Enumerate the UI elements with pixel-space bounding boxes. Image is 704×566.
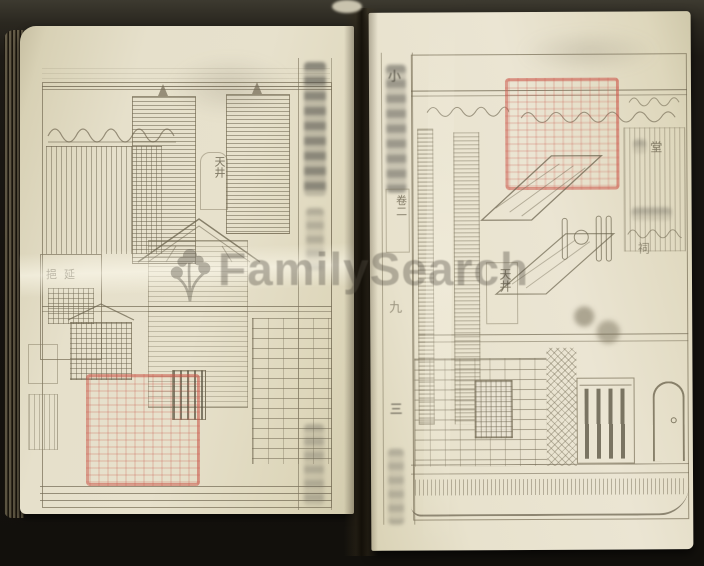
photo-of-open-genealogy-book: 天井 挹延 (0, 0, 704, 566)
roof-finial-left (158, 84, 168, 96)
left-page: 天井 挹延 (20, 26, 354, 514)
platform-hatch-band (415, 478, 685, 495)
illegible-margin-characters (304, 424, 324, 506)
base-platform-right (411, 463, 689, 516)
right-page: 小 卷二 九 三 天井 (369, 11, 694, 551)
gate-lintel (580, 384, 632, 385)
mid-wall-rule-right (418, 333, 688, 342)
small-house (70, 322, 132, 380)
ritual-vessels-group (562, 210, 614, 268)
gutter-title-first-character: 小 (388, 66, 401, 85)
hall-label: 堂 (650, 138, 662, 155)
platform-rule (411, 472, 689, 474)
scroll-ornament-upper-right (627, 93, 681, 107)
paper-stain (170, 56, 290, 116)
book-gutter-shadow (344, 8, 378, 556)
red-square-collection-seal-left (86, 374, 200, 486)
illegible-annex-label (632, 207, 672, 220)
illegible-title-characters (304, 62, 326, 196)
margin-structure-upper (28, 344, 58, 384)
volume-label: 卷二 (391, 195, 407, 249)
vessel-stand (562, 218, 568, 260)
arched-doorway (653, 381, 685, 461)
door-handle-ring (671, 417, 677, 423)
lattice-window-right-page (475, 380, 513, 438)
illegible-gutter-lower-text (388, 449, 404, 525)
round-vessel (574, 230, 589, 245)
courtyard-label-right-page: 天井 (493, 268, 511, 322)
cobblestone-path (546, 348, 577, 466)
scroll-ornament-mid-right (626, 225, 682, 239)
courtyard-label-left-page: 天井 (205, 156, 225, 208)
shrine-label: 祠 (638, 239, 650, 256)
cloud-scroll-ridge (46, 120, 178, 146)
vessel-stand (606, 216, 612, 262)
protruding-page-edge (332, 0, 362, 13)
gutter-section-number: 三 (390, 399, 403, 418)
base-platform-lines-left (40, 486, 332, 504)
gutter-page-number: 九 (389, 297, 402, 316)
illegible-hall-label-companion (633, 139, 646, 153)
margin-structure-lower (28, 394, 58, 450)
vessel-stand (596, 216, 602, 262)
barred-gate (577, 377, 635, 463)
gate-bars (585, 388, 629, 458)
small-house-roof (66, 302, 136, 322)
